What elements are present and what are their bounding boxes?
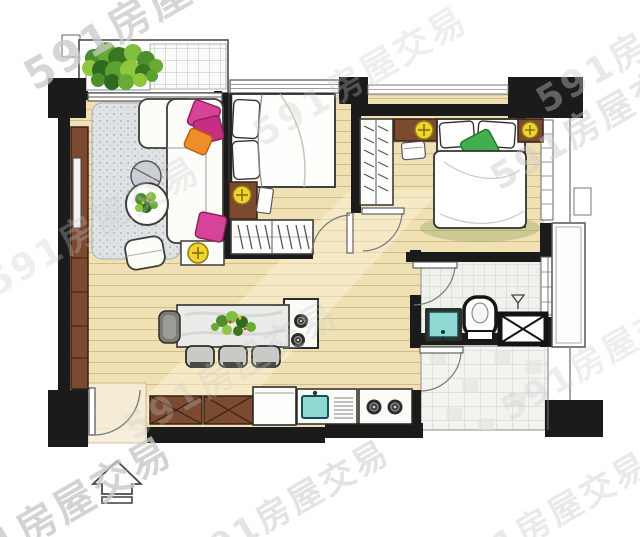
ledge-equipment — [574, 188, 591, 215]
bottom-wall-right — [325, 423, 423, 438]
entry-floor — [88, 383, 146, 443]
small-bedroom-window — [230, 80, 339, 93]
master-top-wall — [359, 104, 510, 116]
master-door — [362, 208, 404, 214]
tv — [73, 158, 81, 228]
bottom-wall-left — [147, 427, 325, 443]
rear-balcony-door — [420, 347, 463, 353]
bathroom-door — [413, 262, 457, 268]
ac-ledge — [552, 223, 585, 347]
bed-pillow — [232, 140, 260, 179]
balcony-ledge-box — [62, 35, 80, 57]
floor-plan-page: 591房屋交易 591房屋交易 591房屋交易 591房屋交易 591房屋交易 … — [0, 0, 640, 537]
pillar-bottom-left — [48, 390, 88, 447]
bed-pillow — [232, 99, 260, 138]
master-bottom-wall — [406, 252, 543, 262]
dining-chairs — [186, 346, 280, 368]
kitchen-sink — [302, 396, 328, 418]
front-balcony — [62, 35, 228, 93]
floor-plan-image — [0, 0, 640, 537]
small-bedroom-door — [347, 213, 353, 253]
bathroom-window — [541, 257, 553, 315]
bench — [401, 141, 425, 160]
sofa-pillow-magenta-3 — [195, 211, 228, 242]
left-wall — [58, 118, 70, 390]
pillar-top-center — [339, 77, 368, 104]
pillar-bottom-right — [545, 400, 603, 437]
toilet-tank — [467, 331, 493, 340]
bedside-tray — [256, 187, 273, 214]
entry-door — [89, 388, 95, 435]
pillar-top-right — [508, 77, 583, 118]
entrance-arrow-icon — [93, 461, 141, 503]
